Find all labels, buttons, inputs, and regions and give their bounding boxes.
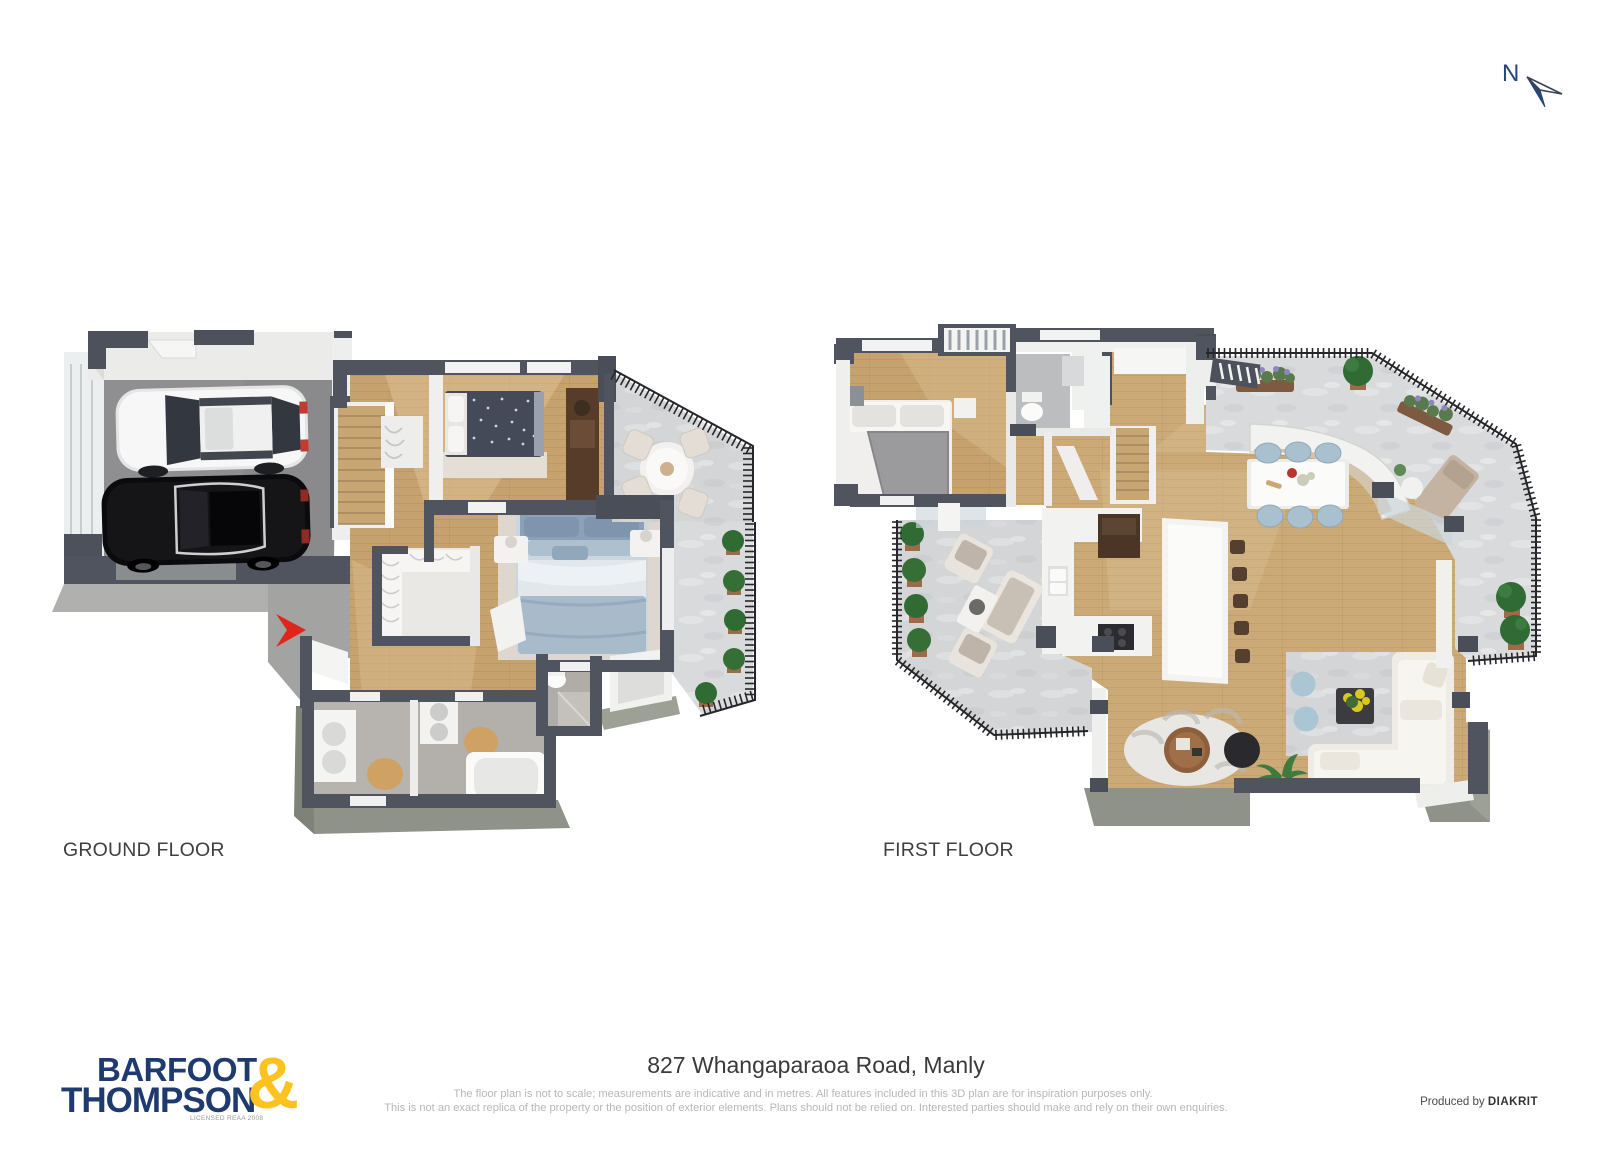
svg-text:N: N <box>1502 60 1519 87</box>
svg-text:&: & <box>247 1044 299 1124</box>
svg-text:Produced by DIAKRIT: Produced by DIAKRIT <box>1420 1096 1538 1108</box>
svg-text:This is not an exact replica o: This is not an exact replica of the prop… <box>384 1102 1228 1114</box>
svg-text:GROUND FLOOR: GROUND FLOOR <box>63 839 225 861</box>
svg-text:LICENSED REAA 2008: LICENSED REAA 2008 <box>190 1115 263 1122</box>
svg-text:The floor plan is not to scale: The floor plan is not to scale; measurem… <box>453 1088 1152 1100</box>
svg-text:827 Whangaparaoa Road, Manly: 827 Whangaparaoa Road, Manly <box>647 1052 985 1078</box>
svg-text:FIRST FLOOR: FIRST FLOOR <box>883 839 1014 861</box>
